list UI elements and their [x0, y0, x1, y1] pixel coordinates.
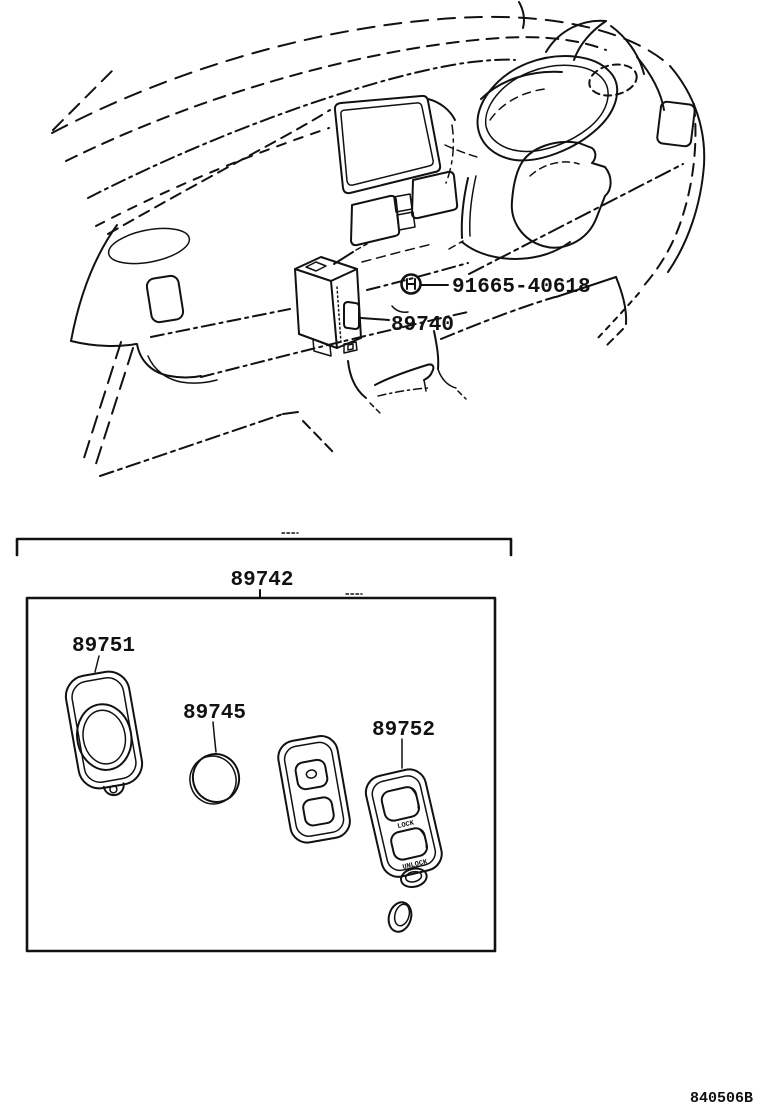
parts-diagram-page: 91665-40618 89740 89742 89751 89745: [0, 0, 760, 1112]
transmitter-89752: LOCK UNLOCK: [362, 766, 448, 893]
bolt-icon: [402, 275, 421, 294]
round-vent: [586, 60, 639, 99]
doc-number: 840506B: [690, 1090, 753, 1107]
fob-case-89751: [63, 668, 147, 800]
battery-cover-89745: [185, 749, 245, 809]
diagram-figure: 91665-40618 89740 89742 89751 89745: [0, 0, 760, 1112]
label-bolt-part-number: 91665-40618: [452, 276, 591, 299]
right-vent: [657, 101, 696, 147]
unlock-button: [389, 826, 428, 861]
connector-port: [344, 302, 359, 329]
center-stack: [335, 96, 477, 245]
label-receiver-part-number: 89740: [391, 314, 454, 337]
dashboard-illustration: 91665-40618 89740: [52, 2, 704, 476]
label-cover-part-number: 89751: [72, 635, 135, 658]
fob-button-pad: [276, 733, 353, 845]
antenna-pin: [334, 252, 353, 264]
lock-button: [380, 785, 421, 822]
label-battery-cover-part-number: 89745: [183, 702, 246, 725]
label-transmitter-part-number: 89752: [372, 719, 435, 742]
left-dash: [71, 222, 217, 470]
leader-receiver: [361, 318, 389, 320]
hvac-vent-left: [351, 196, 399, 245]
set-bracket: [17, 539, 511, 555]
label-set-part-number: 89742: [230, 569, 293, 592]
display-unit: [335, 96, 440, 193]
side-vent: [146, 275, 184, 323]
key-ring: [385, 900, 414, 935]
leader-89745: [213, 722, 216, 752]
speaker-grille: [106, 222, 193, 269]
windshield-lines: [52, 17, 670, 234]
leader-89751: [95, 656, 99, 672]
unlock-button-label: UNLOCK: [402, 858, 429, 872]
receiver-unit: [295, 241, 463, 356]
transmitter-set-section: 89742 89751 89745: [17, 533, 511, 951]
hvac-vent-right: [412, 172, 457, 218]
